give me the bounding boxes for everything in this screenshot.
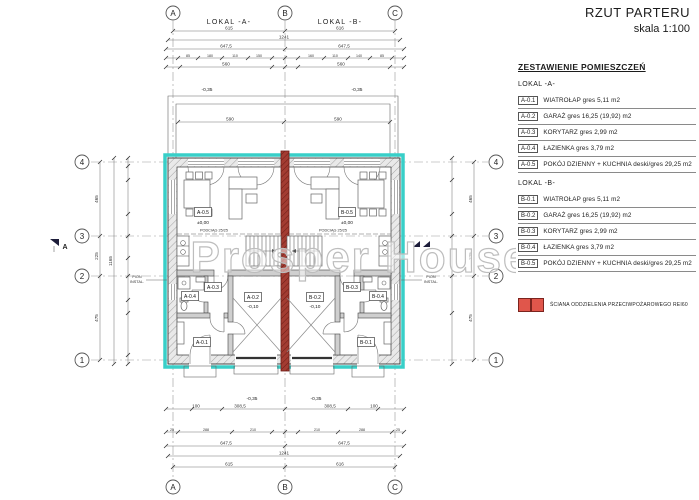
axis-1-left: 1 (80, 356, 85, 365)
room-desc: WIATROŁAP gres 5,11 m2 (543, 196, 620, 203)
dim: 647,5 (220, 441, 232, 446)
axis-b-top: B (282, 9, 287, 18)
dimensions-left: 465 225 475 1165 (94, 156, 130, 366)
kitchen-counter (177, 236, 189, 266)
dim: 85 (186, 54, 190, 58)
garage-level-b: -0,10 (310, 304, 321, 310)
legend-row-a1: A-0.1WIATROŁAP gres 5,11 m2 (518, 93, 696, 109)
garage-level-a: -0,10 (248, 304, 259, 310)
room-desc: KORYTARZ gres 2,99 m2 (543, 129, 617, 136)
dim: 110 (332, 54, 338, 58)
axis-c-bottom: C (392, 483, 398, 492)
dim: 475 (94, 314, 99, 322)
dim: 590 (226, 117, 234, 122)
room-code: B-0.1 (518, 195, 538, 204)
dim: 647,5 (220, 44, 232, 49)
dim: 210 (314, 428, 320, 432)
dim: 150 (256, 54, 262, 58)
dim: 210 (250, 428, 256, 432)
room-label-b5: B-0.5 (341, 210, 353, 216)
dim: 560 (222, 62, 230, 67)
room-code: B-0.2 (518, 211, 538, 220)
drawing-title: RZUT PARTERU (585, 5, 690, 22)
legend-row-a3: A-0.3KORYTARZ gres 2,99 m2 (518, 125, 696, 141)
axis-4-left: 4 (80, 158, 85, 167)
dim: 647,5 (338, 441, 350, 446)
room-code: B-0.3 (518, 227, 538, 236)
axis-1-right: 1 (494, 356, 499, 365)
dim: 615 (225, 462, 233, 467)
room-label-a2: A-0.2 (247, 295, 259, 301)
dim: 85 (380, 54, 384, 58)
legend-row-b1: B-0.1WIATROŁAP gres 5,11 m2 (518, 192, 696, 208)
dining-table (358, 180, 384, 208)
terrace-outline (168, 96, 398, 158)
fire-wall-legend: ŚCIANA ODDZIELENIA PRZECIWPOŻAROWEGO REI… (518, 298, 696, 312)
fire-wall-swatch-icon (518, 298, 544, 312)
entry-wardrobe (177, 322, 184, 344)
room-code: B-0.5 (518, 259, 538, 268)
riser-label-left: PION (132, 275, 142, 279)
room-desc: WIATROŁAP gres 5,11 m2 (543, 97, 620, 104)
drawing-scale: skala 1:100 (585, 22, 690, 36)
legend-lokal-a-title: LOKAL -A- (518, 81, 696, 88)
terrace-level-a: -0,35 (202, 87, 213, 93)
room-label-a4: A-0.4 (184, 294, 196, 300)
title-block: RZUT PARTERU skala 1:100 (585, 5, 690, 36)
garage-door-b (291, 354, 333, 371)
sofa (311, 177, 339, 219)
dim: 647,5 (338, 44, 350, 49)
legend-row-a4: A-0.4ŁAZIENKA gres 3,79 m2 (518, 141, 696, 157)
dim: 590 (334, 117, 342, 122)
watermark: Prosper House (191, 233, 516, 282)
floor-level-b: ±0,00 (341, 220, 353, 226)
garage-door-a (235, 354, 277, 371)
room-label-b3: B-0.3 (346, 285, 358, 291)
floor-plan-sheet: RZUT PARTERU skala 1:100 ZESTAWIENIE POM… (0, 0, 699, 500)
legend-row-b4: B-0.4ŁAZIENKA gres 3,79 m2 (518, 240, 696, 256)
room-code: A-0.3 (518, 128, 538, 137)
legend-row-a5: A-0.5POKÓJ DZIENNY + KUCHNIA deski/gres … (518, 157, 696, 173)
legend-row-b3: B-0.3KORYTARZ gres 2,99 m2 (518, 224, 696, 240)
dim: 100 (370, 404, 378, 409)
dim: 615 (225, 26, 233, 31)
room-desc: KORYTARZ gres 2,99 m2 (543, 228, 617, 235)
room-label-b4: B-0.4 (372, 294, 384, 300)
dim: 308,5 (234, 404, 246, 409)
room-label-b2: B-0.2 (309, 295, 321, 301)
dim: 560 (337, 62, 345, 67)
axis-2-left: 2 (80, 272, 85, 281)
dim: 1241 (279, 451, 290, 456)
room-label-a3: A-0.3 (207, 285, 219, 291)
riser-label-left2: INSTAL. (130, 280, 144, 284)
legend-lokal-b-title: LOKAL -B- (518, 180, 696, 187)
section-letter: A (62, 244, 67, 251)
dim: 616 (336, 26, 344, 31)
beam-label-a: PODCIĄG 25/25 (200, 229, 228, 233)
axis-a-top: A (170, 9, 176, 18)
room-desc: ŁAZIENKA gres 3,79 m2 (543, 145, 614, 152)
sofa (229, 177, 257, 219)
room-code: A-0.4 (518, 144, 538, 153)
dim: 160 (308, 54, 314, 58)
room-code: A-0.1 (518, 96, 538, 105)
dim: 465 (94, 195, 99, 203)
room-desc: GARAŻ gres 16,25 (19,92) m2 (543, 113, 631, 120)
room-desc: POKÓJ DZIENNY + KUCHNIA deski/gres 29,25… (543, 260, 692, 267)
dim: 180 (207, 54, 213, 58)
room-code: A-0.2 (518, 112, 538, 121)
dim: 288 (203, 428, 209, 432)
dim: 616 (336, 462, 344, 467)
dim: 288 (359, 428, 365, 432)
room-label-a1: A-0.1 (196, 340, 208, 346)
legend-row-b2: B-0.2GARAŻ gres 16,25 (19,92) m2 (518, 208, 696, 224)
dim: 25 (170, 428, 174, 432)
room-code: A-0.5 (518, 160, 538, 169)
legend-row-b5: B-0.5POKÓJ DZIENNY + KUCHNIA deski/gres … (518, 256, 696, 272)
dim: 100 (192, 404, 200, 409)
dim: 465 (468, 195, 473, 203)
axis-3-left: 3 (80, 232, 85, 241)
legend-heading: ZESTAWIENIE POMIESZCZEŃ (518, 62, 696, 72)
porch-level-b: -0,35 (311, 396, 322, 402)
dim: 308,5 (324, 404, 336, 409)
floor-plan-drawing: A-0.5 ±0,00 B-0.5 ±0,00 A-0.3 A-0.4 A-0.… (0, 0, 516, 500)
room-label-a5: A-0.5 (197, 210, 209, 216)
axis-4-right: 4 (494, 158, 499, 167)
axis-b-bottom: B (282, 483, 287, 492)
dim: 110 (232, 54, 238, 58)
room-label-b1: B-0.1 (360, 340, 372, 346)
dim: 25 (396, 428, 400, 432)
beam-label-b: PODCIĄG 25/25 (319, 229, 347, 233)
dining-table (184, 180, 210, 208)
terrace-level-b: -0,35 (352, 87, 363, 93)
floor-level-a: ±0,00 (197, 220, 209, 226)
room-desc: GARAŻ gres 16,25 (19,92) m2 (543, 212, 631, 219)
axis-c-top: C (392, 9, 398, 18)
axis-a-bottom: A (170, 483, 176, 492)
porch-level-a: -0,35 (247, 396, 258, 402)
dim: 1241 (279, 35, 290, 40)
dim: 225 (94, 252, 99, 260)
entry-wardrobe (384, 322, 391, 344)
room-desc: POKÓJ DZIENNY + KUCHNIA deski/gres 29,25… (543, 161, 692, 168)
room-code: B-0.4 (518, 243, 538, 252)
fire-wall-note: ŚCIANA ODDZIELENIA PRZECIWPOŻAROWEGO REI… (550, 302, 688, 308)
dim: 1165 (108, 256, 113, 266)
legend-row-a2: A-0.2GARAŻ gres 16,25 (19,92) m2 (518, 109, 696, 125)
room-schedule-legend: ZESTAWIENIE POMIESZCZEŃ LOKAL -A- A-0.1W… (518, 62, 696, 312)
room-desc: ŁAZIENKA gres 3,79 m2 (543, 244, 614, 251)
dim: 140 (356, 54, 362, 58)
dim: 475 (468, 314, 473, 322)
